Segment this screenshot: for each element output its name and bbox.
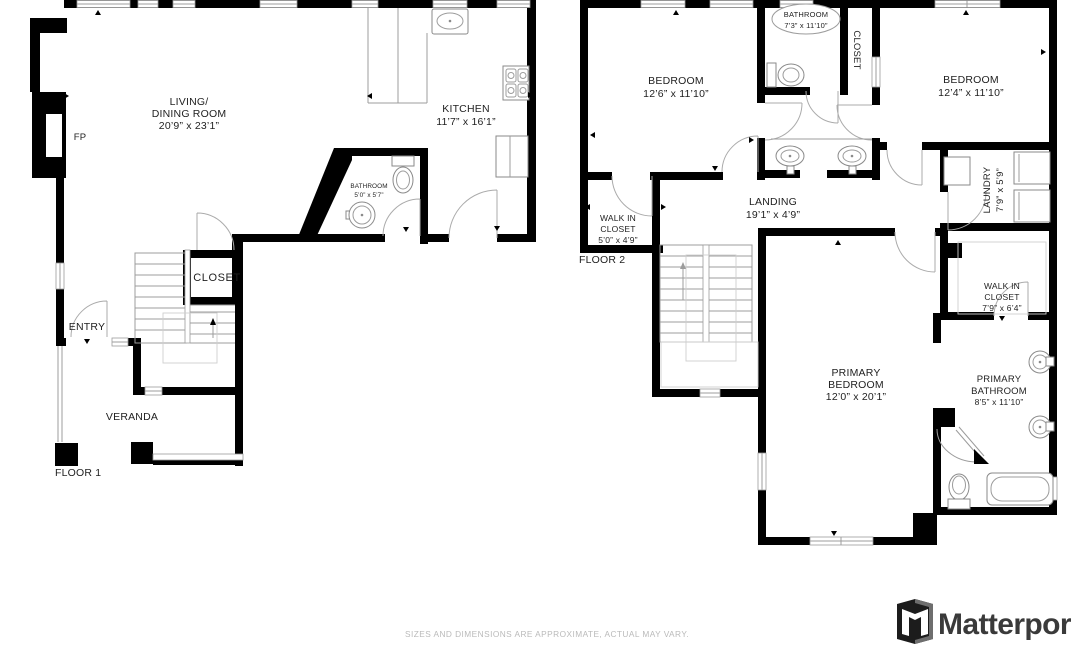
- window: [138, 1, 158, 8]
- room-name: BEDROOM: [943, 74, 999, 86]
- bathroom-door: [383, 199, 420, 236]
- bathroom-top-label: BATHROOM 7’3” x 11’10”: [772, 4, 840, 34]
- dryer: [1014, 190, 1050, 222]
- veranda-railing-band: [153, 454, 243, 460]
- room-dimensions: 8’5” x 11’10”: [975, 397, 1024, 407]
- matterport-logo: Matterport: [897, 599, 1071, 644]
- room-dimensions: 7’3” x 11’10”: [784, 21, 828, 30]
- floor1-dimension-arrows: [64, 10, 533, 344]
- floor2-doors: [612, 91, 1028, 316]
- closet-door: [197, 213, 234, 250]
- room-name: BATHROOM: [784, 10, 828, 19]
- vanity-left-door: [765, 103, 802, 140]
- room-dimensions: 20’9” x 23’1”: [159, 120, 220, 132]
- room-name: CLOSET: [193, 272, 241, 284]
- window: [173, 1, 195, 8]
- closet-top-label: CLOSET: [851, 30, 862, 69]
- bathroom-sink: [346, 202, 375, 228]
- room-name: DINING ROOM: [152, 108, 227, 120]
- primary-bathroom-label: PRIMARY BATHROOM 8’5” x 11’10”: [971, 374, 1027, 407]
- window: [260, 1, 297, 8]
- room-name: CLOSET: [851, 30, 862, 69]
- floor2-plan: BEDROOM 12’6” x 11’10” BATHROOM 7’3” x 1…: [579, 0, 1057, 545]
- room-name: FP: [74, 132, 87, 143]
- window: [77, 1, 130, 8]
- window: [145, 387, 162, 395]
- room-dimensions: 19’1” x 4’9”: [746, 209, 801, 221]
- living-room-label: LIVING/ DINING ROOM 20’9” x 23’1”: [152, 96, 227, 132]
- window: [433, 1, 467, 8]
- shower: [937, 427, 989, 464]
- vanity-right-door: [837, 105, 872, 140]
- bedroom-left-door: [722, 136, 758, 172]
- room-dimensions: 12’4” x 11’10”: [938, 87, 1004, 99]
- disclaimer-text: SIZES AND DIMENSIONS ARE APPROXIMATE, AC…: [405, 629, 689, 639]
- room-name: KITCHEN: [442, 103, 490, 115]
- room-name: BEDROOM: [648, 75, 704, 87]
- room-name: CLOSET: [984, 292, 1019, 302]
- veranda-railing: [58, 346, 62, 442]
- walk-in-closet-door: [612, 176, 652, 216]
- room-dimensions: 11’7” x 16’1”: [436, 116, 496, 128]
- window: [641, 1, 685, 8]
- room-name: BATHROOM: [350, 183, 387, 190]
- toilet: [948, 474, 970, 509]
- kitchen-sink: [432, 9, 468, 34]
- bathroom-label: BATHROOM 5’0” x 5’7”: [350, 183, 387, 199]
- room-dimensions: 5’0” x 4’9”: [598, 235, 638, 245]
- room-name: WALK IN: [984, 281, 1020, 291]
- laundry-label: LAUNDRY 7’9” x 5’9”: [982, 166, 1006, 213]
- bedroom-left-label: BEDROOM 12’6” x 11’10”: [643, 75, 709, 100]
- room-dimensions: 7’9” x 6’4”: [982, 303, 1022, 313]
- room-name: BATHROOM: [971, 386, 1027, 397]
- window: [710, 1, 753, 8]
- floor1-plan: LIVING/ DINING ROOM 20’9” x 23’1” KITCHE…: [30, 0, 536, 479]
- room-dimensions: 7’9” x 5’9”: [995, 168, 1006, 212]
- primary-bedroom-label: PRIMARY BEDROOM 12’0” x 20’1”: [826, 367, 887, 403]
- toilet: [767, 63, 804, 87]
- walk-in-closet-left-label: WALK IN CLOSET 5’0” x 4’9”: [598, 213, 638, 245]
- washer: [1014, 152, 1050, 184]
- staircase-floor2: [660, 245, 758, 387]
- window: [352, 1, 378, 8]
- closet-label: CLOSET: [193, 272, 241, 284]
- closet-bifold-door: [872, 57, 880, 87]
- room-name: PRIMARY: [831, 367, 880, 379]
- bedroom-right-door: [887, 150, 922, 185]
- room-name: LAUNDRY: [982, 166, 993, 213]
- room-dimensions: 12’0” x 20’1”: [826, 391, 887, 403]
- window: [56, 263, 64, 289]
- room-name: PRIMARY: [977, 374, 1022, 385]
- room-name: LIVING/: [170, 96, 209, 108]
- window: [758, 453, 766, 490]
- kitchen-counter: [368, 8, 427, 103]
- kitchen-door: [449, 190, 497, 238]
- floor2-title: FLOOR 2: [579, 254, 625, 266]
- vanity-sinks: [771, 139, 872, 174]
- window: [810, 537, 873, 545]
- floor1-title: FLOOR 1: [55, 467, 101, 479]
- refrigerator: [496, 136, 528, 177]
- room-name: BEDROOM: [828, 379, 884, 391]
- bathtub: [987, 473, 1053, 505]
- floor1-walls: [30, 0, 536, 466]
- landing-label: LANDING 19’1” x 4’9”: [746, 196, 801, 221]
- room-name: LANDING: [749, 196, 797, 208]
- room-name: ENTRY: [69, 321, 105, 333]
- room-name: VERANDA: [106, 411, 158, 423]
- bedroom-right-label: BEDROOM 12’4” x 11’10”: [938, 74, 1004, 99]
- room-name: WALK IN: [600, 213, 636, 223]
- window: [497, 1, 530, 8]
- walk-in-closet-right-label: WALK IN CLOSET 7’9” x 6’4”: [982, 281, 1022, 313]
- window: [935, 1, 1000, 8]
- toilet: [392, 156, 414, 193]
- floor1-windows: [56, 1, 530, 461]
- kitchen-label: KITCHEN 11’7” x 16’1”: [436, 103, 496, 128]
- matterport-cube-icon: [897, 599, 933, 644]
- veranda-label: VERANDA: [106, 411, 158, 423]
- room-dimensions: 5’0” x 5’7”: [354, 192, 383, 199]
- floor-plan: LIVING/ DINING ROOM 20’9” x 23’1” KITCHE…: [0, 0, 1071, 656]
- fireplace-label: FP: [74, 132, 87, 143]
- room-name: CLOSET: [600, 224, 635, 234]
- stove: [503, 66, 529, 100]
- entry-label: ENTRY: [69, 321, 105, 333]
- window: [700, 389, 720, 397]
- brand-wordmark: Matterport: [938, 608, 1071, 641]
- primary-bedroom-door: [895, 232, 935, 272]
- staircase-floor1: [135, 250, 235, 363]
- room-dimensions: 12’6” x 11’10”: [643, 88, 709, 100]
- entry-sidelight: [112, 338, 128, 346]
- bathroom-top-door: [806, 91, 838, 123]
